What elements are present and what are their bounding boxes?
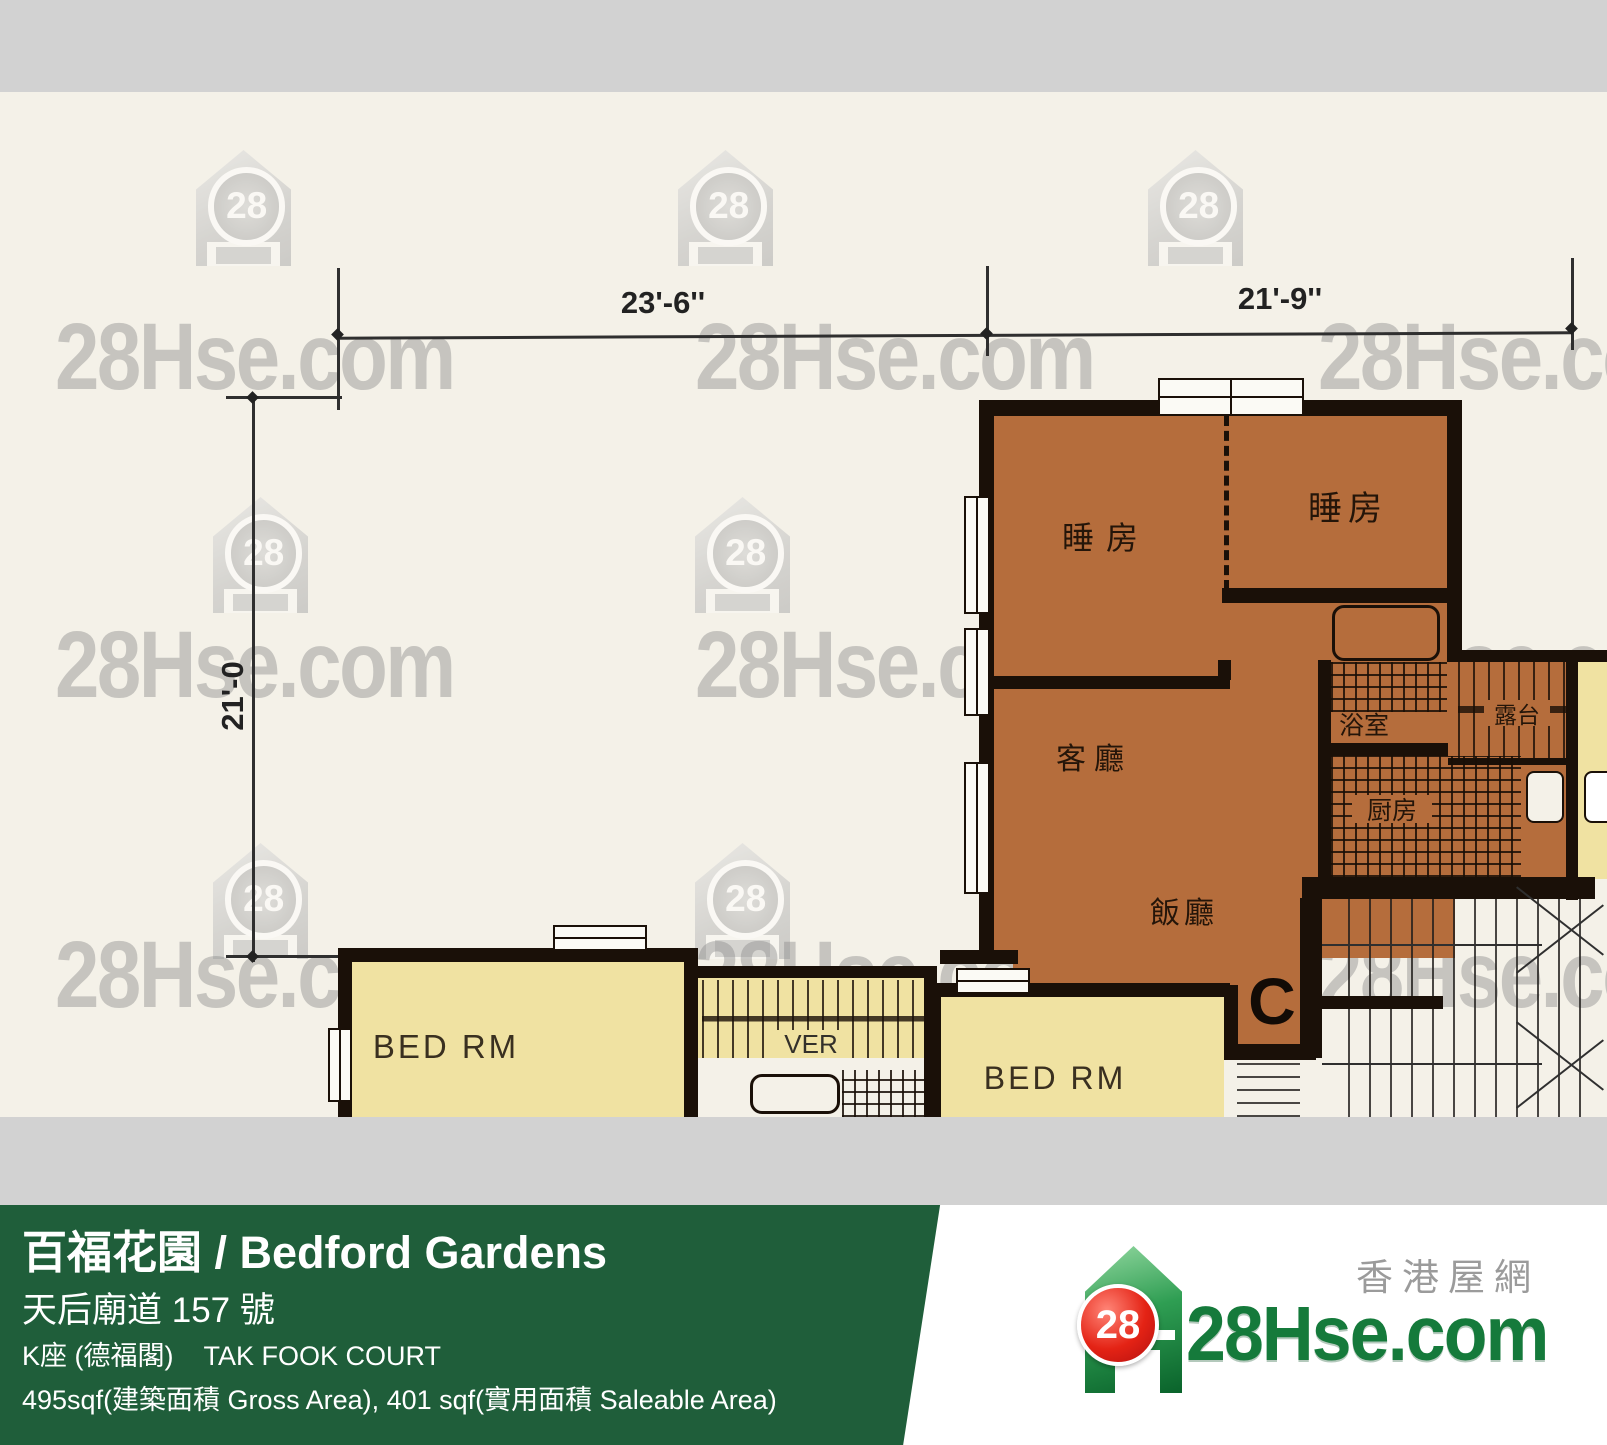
wall-segment [940, 950, 1018, 964]
room-label-bed-rm-left: BED RM [346, 1028, 546, 1066]
watermark-house-icon: 28 [1148, 150, 1243, 266]
estate-title: 百福花園 / Bedford Gardens [22, 1216, 607, 1281]
unit-letter-label: C [1240, 965, 1304, 1037]
room-label-dining-room: 飯廳 [1138, 894, 1230, 926]
watermark-28-badge: 28 [225, 514, 302, 592]
wall-dashed-partition [1224, 416, 1229, 590]
verandah-tub-fixture [750, 1074, 840, 1114]
window [1158, 378, 1232, 416]
room-label-bathroom: 浴室 [1328, 710, 1400, 738]
watermark-28-badge: 28 [208, 167, 285, 245]
room-label-verandah: VER [776, 1030, 846, 1058]
toilet-fixture [1526, 771, 1564, 823]
logo-tagline: 香港屋網 [1356, 1247, 1540, 1301]
estate-address: 天后廟道 157 號 [22, 1282, 275, 1333]
watermark-house-icon: 28 [678, 150, 773, 266]
room-label-bedroom-left: 睡房 [1056, 518, 1156, 554]
estate-block: K座 (德福閣) [22, 1341, 174, 1371]
toilet-fixture [1584, 771, 1607, 823]
estate-block-line: K座 (德福閣)TAK FOOK COURT [22, 1334, 441, 1373]
room-label-bedroom-right: 睡房 [1300, 486, 1396, 524]
dimension-label-left: 21'-0 [213, 616, 253, 776]
window [964, 762, 990, 894]
room-label-kitchen: 厨房 [1352, 795, 1432, 823]
wall-segment [691, 966, 937, 978]
bottom-gray-strip [0, 1117, 1607, 1205]
dimension-tick [1571, 258, 1574, 350]
room-label-living-room: 客廳 [1046, 740, 1142, 772]
bathtub-fixture [1332, 605, 1440, 661]
bathroom-hatch [1331, 662, 1447, 712]
house-door [216, 247, 271, 263]
wall-segment [1302, 877, 1595, 899]
watermark-house-icon: 28 [213, 497, 308, 613]
bedroom-right-unit-fill [939, 995, 1224, 1117]
estate-area-info: 495sqf(建築面積 Gross Area), 401 sqf(實用面積 Sa… [22, 1378, 777, 1417]
wall-segment [1447, 400, 1462, 662]
wall-segment [1218, 660, 1231, 680]
dimension-tick [986, 266, 989, 356]
window [1230, 378, 1304, 416]
wall-segment [983, 676, 1230, 689]
wall-segment [1325, 743, 1448, 756]
house-door [698, 247, 753, 263]
staircase-treads [1237, 1062, 1300, 1117]
floor-plan-page: 28 28 28 28 28 28 28 28 28 28Hse.com 28H… [0, 0, 1607, 1445]
wall-segment [1448, 650, 1607, 662]
right-edge-unit-fill [1578, 660, 1607, 879]
dimension-label-top-right: 21'-9'' [1175, 280, 1385, 318]
logo-house-icon: 28 [1085, 1246, 1182, 1393]
window [964, 628, 990, 716]
window [553, 925, 647, 951]
watermark-28-badge: 28 [1160, 167, 1237, 245]
dimension-tick [226, 396, 342, 399]
stair-landing-line [1322, 944, 1542, 946]
watermark-house-icon: 28 [196, 150, 291, 266]
watermark-28-badge: 28 [690, 167, 767, 245]
room-label-balcony: 露台 [1484, 700, 1550, 726]
dimension-label-top-left: 23'-6'' [558, 284, 768, 322]
logo-28-badge: 28 [1077, 1284, 1159, 1366]
house-door [1168, 247, 1223, 263]
logo-brand-text: 28Hse.com [1186, 1290, 1547, 1379]
wall-segment [1300, 996, 1443, 1009]
window [964, 496, 990, 614]
watermark-house-icon: 28 [695, 497, 790, 613]
wall-segment [1318, 660, 1331, 880]
estate-block-en: TAK FOOK COURT [204, 1341, 442, 1371]
window [956, 968, 1030, 994]
room-label-bed-rm-right: BED RM [965, 1060, 1145, 1096]
wall-segment [1566, 650, 1578, 900]
wall-segment [1222, 588, 1462, 603]
watermark-28-badge: 28 [707, 514, 784, 592]
top-gray-strip [0, 0, 1607, 92]
verandah-hatch [842, 1070, 926, 1117]
dimension-tick [226, 955, 342, 958]
stair-landing-line [1322, 1063, 1542, 1065]
